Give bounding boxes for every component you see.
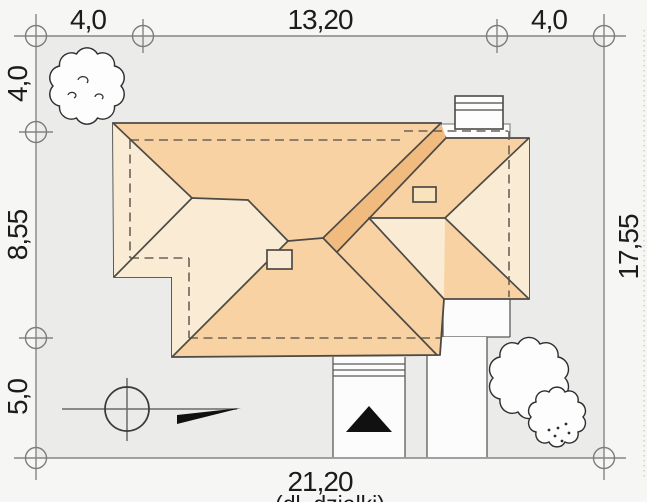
garage-footprint — [443, 299, 510, 337]
tree-icon — [50, 48, 125, 124]
roof-window — [413, 187, 436, 202]
dim-left-upper: 4,0 — [2, 66, 33, 102]
site-plan-svg: 4,0 13,20 4,0 4,0 8,55 5,0 17,55 21,20 (… — [0, 0, 647, 502]
dim-left-lower: 5,0 — [2, 379, 33, 415]
chimney-small — [267, 250, 292, 269]
bush-icon — [529, 387, 586, 447]
dim-right: 17,55 — [613, 214, 644, 279]
dim-top-middle: 13,20 — [287, 4, 352, 35]
dim-left-middle: 8,55 — [2, 209, 33, 260]
chimney-large — [455, 96, 503, 129]
dim-top-right: 4,0 — [531, 4, 567, 35]
site-plan: 4,0 13,20 4,0 4,0 8,55 5,0 17,55 21,20 (… — [0, 0, 647, 502]
bottom-caption-cutoff: (dł. działki) — [275, 491, 385, 502]
dim-top-left: 4,0 — [70, 4, 106, 35]
